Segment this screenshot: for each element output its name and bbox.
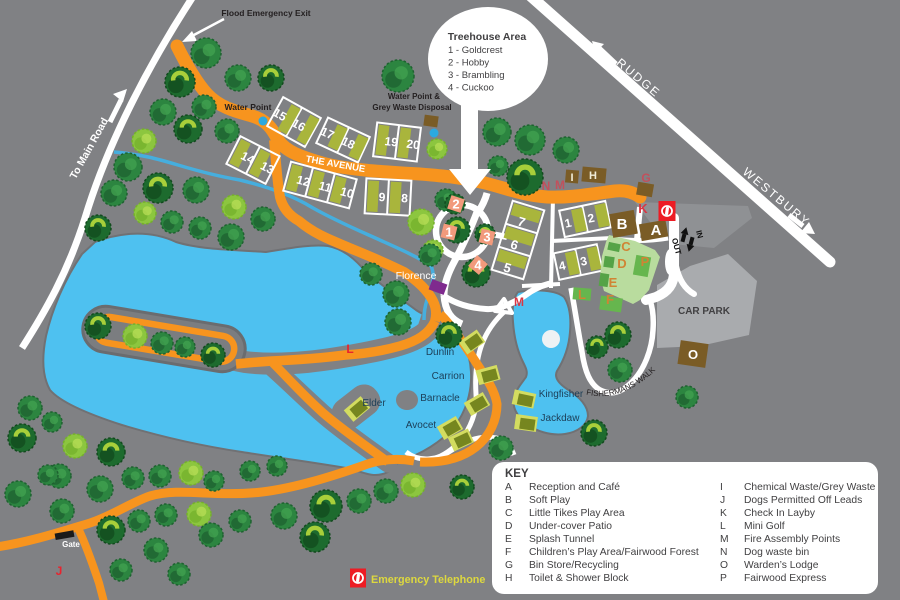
svg-text:1: 1 [445,225,452,240]
svg-text:B: B [617,216,628,233]
svg-text:19: 19 [384,134,399,150]
svg-text:Splash Tunnel: Splash Tunnel [529,534,594,545]
svg-text:C: C [621,239,631,254]
svg-text:N: N [720,547,727,558]
svg-text:Flood Emergency Exit: Flood Emergency Exit [221,8,310,18]
svg-text:Children’s Play Area/Fairwood: Children’s Play Area/Fairwood Forest [529,547,699,558]
svg-text:8: 8 [401,191,409,205]
svg-text:Elder: Elder [362,398,386,409]
svg-text:D: D [505,521,512,532]
svg-text:A: A [651,222,662,239]
svg-text:M: M [514,295,524,309]
svg-text:Fire Assembly Points: Fire Assembly Points [744,534,840,545]
svg-text:9: 9 [378,190,386,204]
svg-text:I: I [570,172,573,184]
svg-text:Dogs Permitted Off Leads: Dogs Permitted Off Leads [744,495,862,506]
svg-text:Reception and Café: Reception and Café [529,482,620,493]
svg-text:CAR PARK: CAR PARK [678,306,731,317]
svg-text:Barnacle: Barnacle [420,393,460,404]
svg-text:Soft Play: Soft Play [529,495,571,506]
svg-text:I: I [720,482,723,493]
svg-text:Bin Store/Recycling: Bin Store/Recycling [529,560,619,571]
svg-text:M: M [555,178,565,192]
svg-text:Jackdaw: Jackdaw [541,413,581,424]
svg-text:K: K [720,508,727,519]
svg-text:J: J [56,564,63,578]
svg-text:H: H [589,170,597,182]
svg-text:Dunlin: Dunlin [426,347,454,358]
svg-text:Avocet: Avocet [406,420,437,431]
svg-text:K: K [638,201,648,216]
svg-text:KEY: KEY [505,468,529,480]
svg-text:2 - Hobby: 2 - Hobby [448,58,489,69]
svg-text:N: N [542,179,551,193]
svg-text:Gate: Gate [62,540,80,549]
svg-text:L: L [578,287,586,302]
svg-text:1 - Goldcrest: 1 - Goldcrest [448,45,503,56]
svg-text:G: G [505,560,513,571]
svg-text:Carrion: Carrion [432,371,465,382]
svg-text:Emergency Telephone: Emergency Telephone [371,574,485,586]
svg-text:H: H [505,573,512,584]
svg-text:3 - Brambling: 3 - Brambling [448,70,505,81]
svg-text:O: O [720,560,728,571]
svg-text:J: J [720,495,725,506]
svg-text:F: F [505,547,511,558]
svg-text:20: 20 [406,137,421,153]
svg-text:P: P [641,254,650,269]
svg-text:Grey Waste Disposal: Grey Waste Disposal [372,103,451,112]
svg-text:Mini Golf: Mini Golf [744,521,785,532]
svg-text:L: L [720,521,726,532]
svg-text:F: F [606,292,614,307]
svg-text:D: D [617,256,626,271]
svg-text:Warden’s Lodge: Warden’s Lodge [744,560,819,571]
svg-text:G: G [641,171,650,185]
svg-text:E: E [505,534,512,545]
svg-text:M: M [720,534,729,545]
svg-text:Chemical Waste/Grey Waste: Chemical Waste/Grey Waste [744,482,876,493]
svg-text:B: B [505,495,512,506]
svg-text:Fairwood Express: Fairwood Express [744,573,826,584]
svg-text:C: C [505,508,513,519]
svg-text:Dog waste bin: Dog waste bin [744,547,810,558]
svg-text:Toilet & Shower Block: Toilet & Shower Block [529,573,629,584]
svg-text:3: 3 [483,230,490,245]
svg-text:Florence: Florence [396,270,437,282]
svg-text:Kingfisher: Kingfisher [539,389,584,400]
svg-text:4: 4 [474,258,482,273]
svg-text:E: E [609,275,618,290]
svg-text:Water Point &: Water Point & [388,92,440,101]
svg-text:P: P [720,573,727,584]
svg-text:Little Tikes Play Area: Little Tikes Play Area [529,508,625,519]
svg-text:Treehouse Area: Treehouse Area [448,31,527,43]
svg-text:Check In Layby: Check In Layby [744,508,816,519]
svg-text:4 - Cuckoo: 4 - Cuckoo [448,83,494,94]
svg-text:Water Point: Water Point [225,102,272,112]
svg-text:Under-cover Patio: Under-cover Patio [529,521,612,532]
svg-text:O: O [688,347,698,362]
svg-text:L: L [346,342,353,356]
svg-text:A: A [505,482,512,493]
svg-text:2: 2 [452,197,459,212]
